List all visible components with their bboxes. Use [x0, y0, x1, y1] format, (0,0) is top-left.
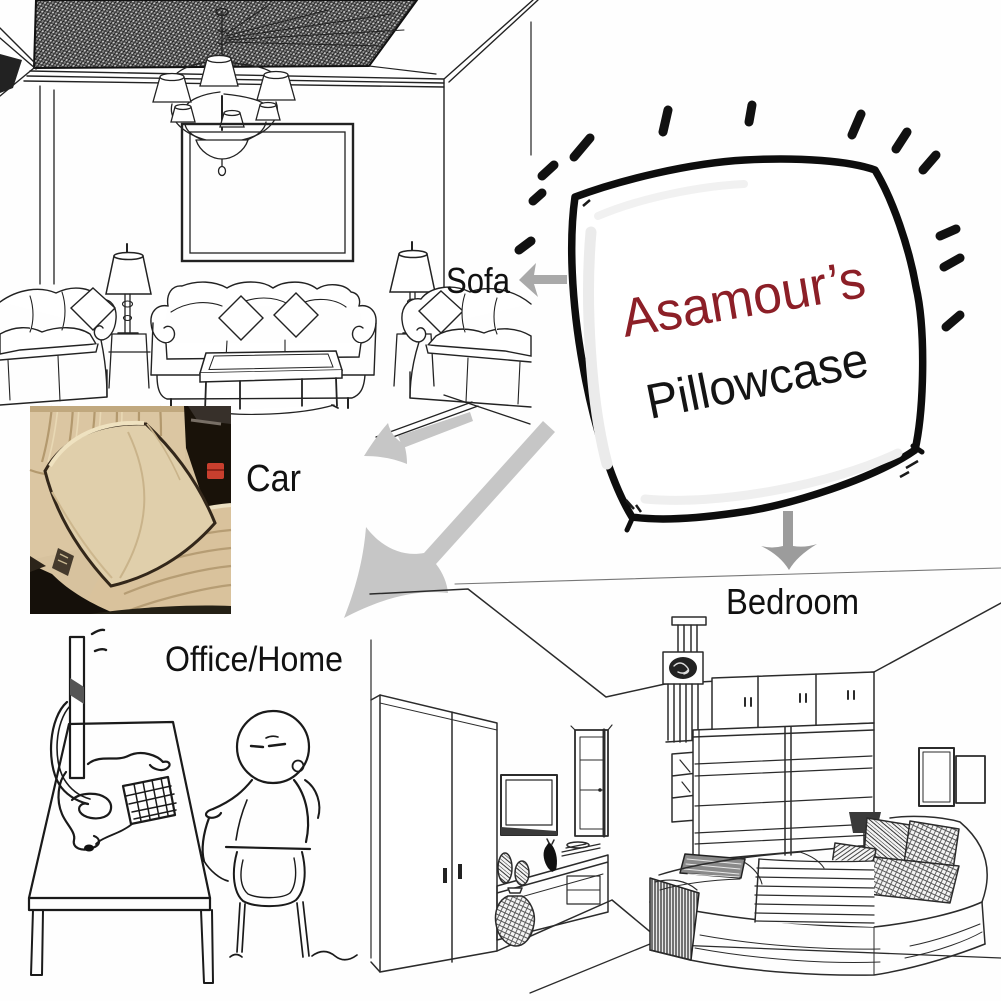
svg-text:Office/Home: Office/Home: [165, 640, 343, 679]
svg-text:Bedroom: Bedroom: [726, 581, 859, 622]
svg-text:Car: Car: [246, 458, 301, 500]
svg-text:Sofa: Sofa: [446, 260, 511, 301]
